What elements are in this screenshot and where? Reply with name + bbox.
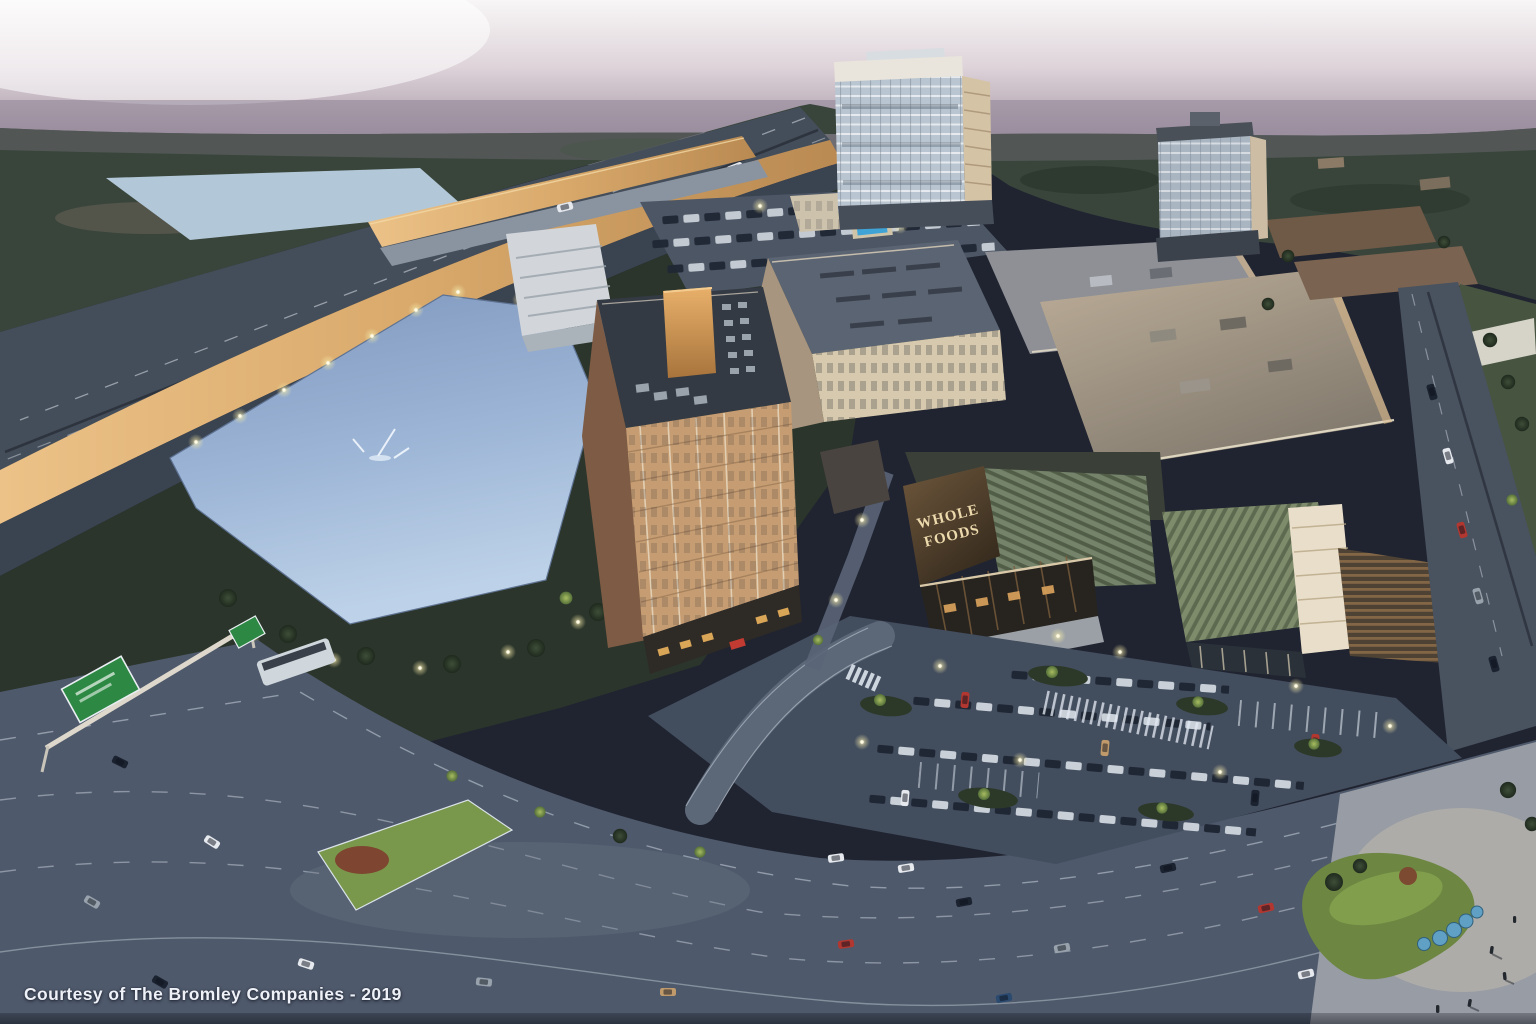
office-tower-secondary [1156,112,1268,262]
hotel-roof-orange-volume [663,287,716,378]
lawn-red-shrub [1399,867,1417,885]
right-road [1398,282,1536,752]
aerial-rendering-scene: WHOLE FOODS [0,0,1536,1024]
hotel-tower [582,287,802,674]
median-red-shrub [335,846,389,874]
caption: Courtesy of The Bromley Companies - 2019 [24,984,402,1005]
parking-garage [1162,502,1458,678]
rendering-canvas: WHOLE FOODS [0,0,1536,1024]
bottom-edge-shade [0,1013,1536,1024]
